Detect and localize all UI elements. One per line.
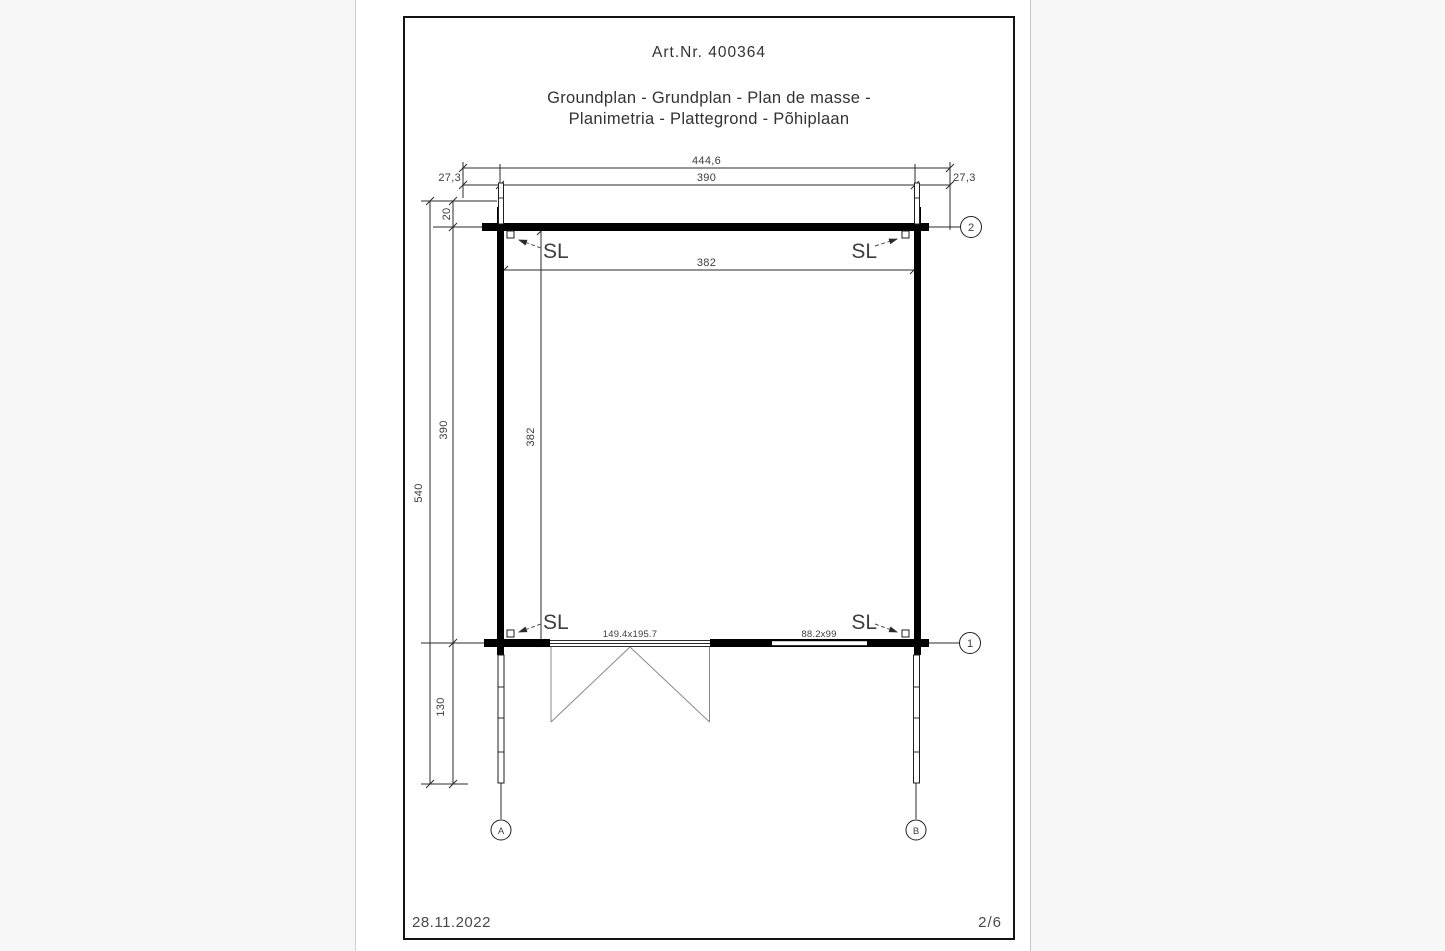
corner-posts [498,183,920,783]
axis-label-1: 1 [967,638,973,650]
walls [482,207,929,655]
dim-wall-depth: 390 [438,420,450,439]
dim-inner-depth: 382 [525,427,537,446]
sl-box-bottom-left [507,630,514,637]
front-post-right [914,655,920,783]
sl-label-bottom-right: SL [851,611,877,634]
dim-wall-width: 390 [697,172,716,184]
top-wall [482,223,929,231]
floor-plan: 88.2x99 149.4x195.7 [403,16,1015,940]
bottom-wall-left-segment [484,639,550,647]
dim-overhang-right: 27,3 [953,172,976,184]
door-swing [551,647,710,722]
window-size-label: 88.2x99 [801,629,836,640]
dim-overall-width: 444,6 [692,155,721,167]
right-wall [914,207,921,655]
date-label: 28.11.2022 [412,914,491,931]
sl-box-top-left [507,231,514,238]
axis-label-2: 2 [968,222,974,234]
sl-label-top-right: SL [851,240,877,263]
axis-label-a: A [498,826,505,837]
front-post-left [498,655,504,783]
dim-overall-depth: 540 [413,483,425,502]
axis-label-b: B [913,826,919,837]
door-size-label: 149.4x195.7 [603,629,658,640]
page-number: 2/6 [978,914,1002,931]
rear-beam-left [499,183,504,224]
dim-inner-width: 382 [697,257,716,269]
dim-canopy-depth: 130 [435,697,447,716]
door-opening: 149.4x195.7 [550,629,710,722]
rear-beam-right [915,183,920,224]
dim-roof-offset: 20 [441,208,453,221]
sl-label-top-left: SL [543,240,569,263]
sl-box-top-right [902,231,909,238]
dim-overhang-left: 27,3 [438,172,461,184]
axis-markers: 2 1 A B [491,217,982,841]
left-wall [497,207,504,655]
sl-label-bottom-left: SL [543,611,569,634]
sl-markers: SL SL SL SL [507,231,909,637]
sl-box-bottom-right [902,630,909,637]
document-page: Art.Nr. 400364 Groundplan - Grundplan - … [355,0,1031,951]
